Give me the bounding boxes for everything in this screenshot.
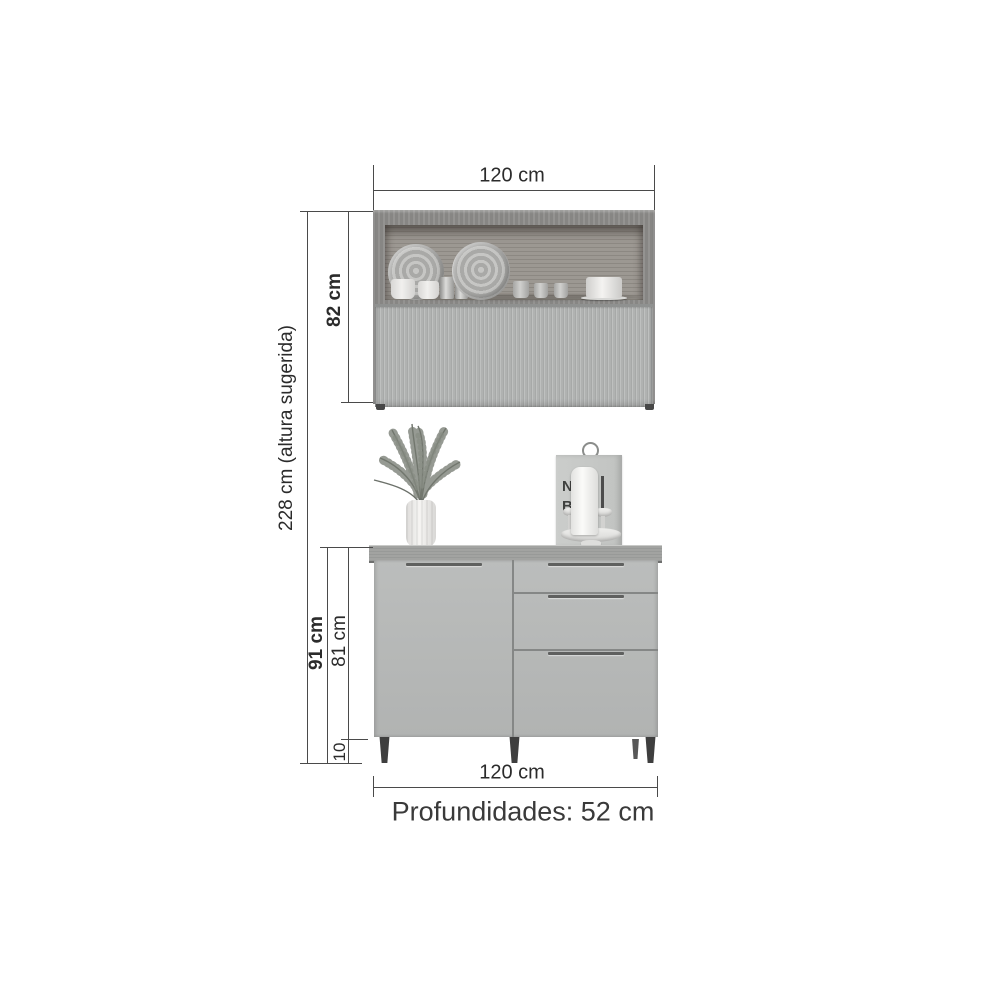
drawer-divider-2: [514, 649, 658, 651]
tick-base-top: [320, 547, 373, 548]
base-cabinet-leg-center: [508, 737, 521, 763]
dim-total-height-line: [307, 211, 308, 764]
decor-vase: [406, 500, 436, 548]
decor-canister-1: [440, 277, 454, 299]
dim-wall-height-label: 82 cm: [324, 273, 346, 327]
drawer-2-handle: [548, 595, 624, 598]
product-dimension-diagram: { "diagram": { "type": "furniture-dimens…: [0, 0, 1000, 1000]
wall-cabinet-end-cap-left: [376, 404, 385, 410]
dim-total-height-label: 228 cm (altura sugerida): [276, 325, 298, 531]
decor-cup-4: [534, 283, 548, 298]
drawer-1-handle: [548, 563, 624, 566]
wall-cabinet-fluted-door: [375, 304, 653, 407]
dim-bottom-width-line: [373, 787, 658, 788]
decor-cup-3: [513, 281, 529, 298]
door-handle: [406, 563, 482, 566]
tick-leg-top: [341, 739, 368, 740]
wall-cabinet-end-cap-right: [645, 404, 654, 410]
base-cabinet-leg-back: [631, 739, 640, 759]
tick-bottom: [300, 763, 362, 764]
dim-bottom-width-label: 120 cm: [479, 762, 545, 785]
decor-taper-candle: [601, 476, 604, 510]
base-cabinet-leg-left: [378, 737, 391, 763]
dim-top-width-label: 120 cm: [479, 165, 545, 188]
tick-top: [300, 211, 373, 212]
decor-plate-2: [452, 242, 510, 300]
drawer-3-handle: [548, 652, 624, 655]
decor-plant: [360, 418, 475, 510]
drawer-divider-1: [514, 592, 658, 594]
decor-cup-2: [418, 281, 439, 299]
depth-note: Profundidades: 52 cm: [392, 797, 655, 828]
dim-top-width-line: [373, 190, 655, 191]
dim-bottom-width-tick-right: [657, 776, 658, 797]
decor-sugar-bowl: [586, 277, 622, 298]
base-cabinet-leg-right: [644, 737, 657, 763]
dim-top-width-tick-right: [654, 165, 655, 210]
decor-cup-1: [391, 279, 415, 299]
tick-wall-bottom: [341, 402, 373, 403]
dim-base-body-label: 81 cm: [329, 615, 351, 667]
dim-bottom-width-tick-left: [373, 776, 374, 797]
decor-pillar-candle: [571, 467, 598, 535]
dim-base-total-label: 91 cm: [306, 616, 328, 670]
dim-leg-label: 10: [330, 743, 350, 762]
decor-cup-5: [554, 283, 568, 298]
decor-holder-right-stem: [601, 516, 605, 529]
dim-wall-height-line: [348, 211, 349, 402]
dim-top-width-tick-left: [373, 165, 374, 210]
